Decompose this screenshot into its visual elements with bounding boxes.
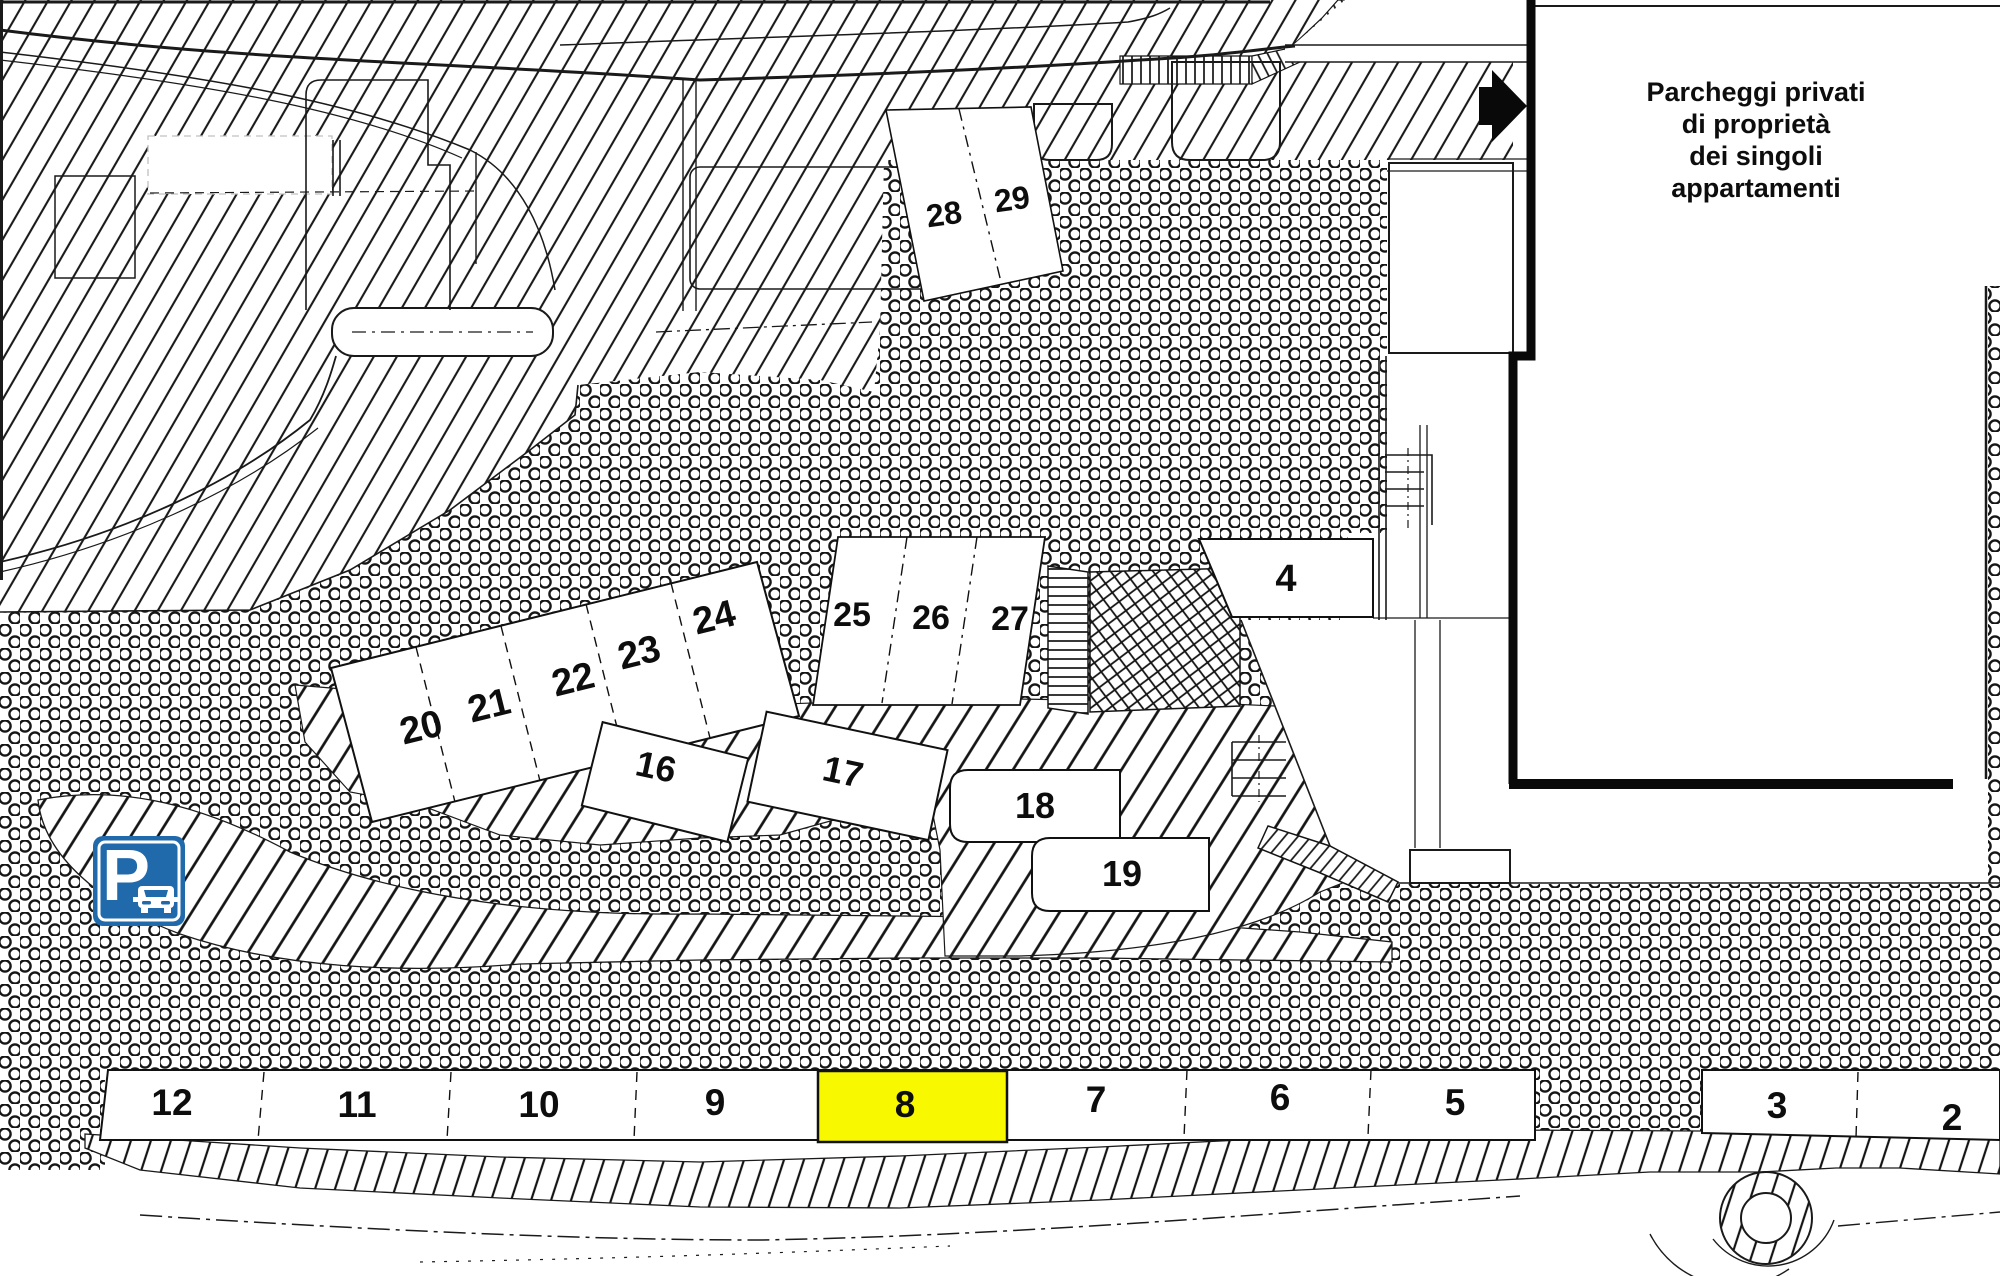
svg-text:27: 27 xyxy=(991,600,1029,638)
svg-text:12: 12 xyxy=(151,1082,192,1123)
svg-text:17: 17 xyxy=(819,747,867,795)
svg-text:appartamenti: appartamenti xyxy=(1671,173,1841,203)
svg-text:16: 16 xyxy=(632,742,680,790)
svg-text:18: 18 xyxy=(1015,785,1055,826)
svg-text:7: 7 xyxy=(1086,1079,1107,1120)
svg-text:di proprietà: di proprietà xyxy=(1682,109,1831,139)
svg-text:Parcheggi privati: Parcheggi privati xyxy=(1646,77,1865,107)
svg-text:6: 6 xyxy=(1270,1077,1291,1118)
svg-text:3: 3 xyxy=(1767,1085,1788,1126)
svg-text:29: 29 xyxy=(992,179,1032,220)
svg-text:5: 5 xyxy=(1445,1082,1466,1123)
svg-text:8: 8 xyxy=(895,1084,916,1125)
svg-text:11: 11 xyxy=(337,1084,376,1125)
svg-text:19: 19 xyxy=(1102,853,1142,894)
svg-text:28: 28 xyxy=(924,194,964,235)
svg-text:9: 9 xyxy=(705,1082,726,1123)
svg-text:4: 4 xyxy=(1275,558,1296,600)
svg-text:10: 10 xyxy=(518,1084,559,1125)
svg-text:26: 26 xyxy=(912,599,950,637)
svg-text:25: 25 xyxy=(833,596,871,634)
svg-text:2: 2 xyxy=(1942,1097,1963,1138)
svg-text:dei singoli: dei singoli xyxy=(1689,141,1823,171)
